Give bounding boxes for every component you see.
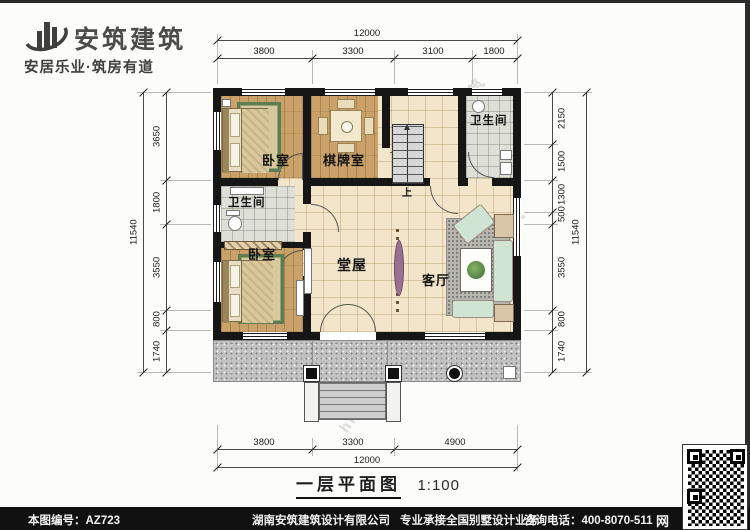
washer [500, 162, 512, 175]
nightstand [222, 99, 231, 107]
room-label-bath-top-right: 卫生间 [470, 112, 508, 128]
window [472, 88, 502, 96]
floor-plan-sheet: 安筑建筑 安居乐业·筑房有道 安筑建筑 安筑建筑 hnaz-jz·com 安筑建… [0, 0, 750, 530]
tv-cabinet [296, 280, 304, 316]
chair [337, 99, 355, 109]
dim-top-seg4: 1800 [474, 45, 514, 57]
stairs [392, 124, 424, 184]
porch-pier [503, 366, 516, 379]
window [408, 88, 453, 96]
dim-right-seg4: 500 [556, 201, 568, 227]
dim-left-seg5: 1740 [151, 332, 163, 370]
dim-top-seg1: 3800 [244, 45, 284, 57]
dim-top-total: 12000 [347, 27, 387, 39]
dim-bottom-seg2: 3300 [333, 436, 373, 448]
dim-right-seg5: 3550 [556, 245, 568, 289]
dim-right-seg6: 800 [556, 306, 568, 332]
interior-wall [492, 178, 513, 186]
footer-bar: 本图编号：AZ723 湖南安筑建筑设计有限公司 专业承接全国别墅设计业务 咨询电… [0, 507, 750, 530]
dim-bottom-total: 12000 [347, 454, 387, 466]
footer-phone: 咨询电话：400-8070-511 [524, 512, 652, 528]
porch-column-square [386, 366, 401, 381]
interior-wall [303, 96, 311, 204]
room-label-living: 客厅 [422, 270, 450, 289]
porch-column-square [304, 366, 319, 381]
drawing-title: 一层平面图 [296, 475, 401, 499]
chair [318, 117, 328, 135]
bed [222, 260, 272, 322]
drawing-scale: 1:100 [417, 477, 460, 494]
window [213, 262, 221, 302]
window [243, 332, 287, 340]
stairs-arrow-line [407, 130, 408, 182]
interior-wall [311, 178, 390, 186]
dim-left-seg1: 3650 [151, 114, 163, 158]
window [213, 205, 221, 232]
window [213, 112, 221, 150]
step-stringer [304, 382, 319, 422]
front-door-opening [320, 332, 376, 340]
dim-right-seg7: 1740 [556, 332, 568, 370]
dim-top-seg2: 3300 [333, 45, 373, 57]
footer-net-mark: 网 [656, 511, 669, 530]
toilet [228, 216, 242, 231]
screen-panel [394, 240, 404, 296]
window [425, 332, 485, 340]
window [513, 198, 521, 256]
brand-logo: 安筑建筑 安居乐业·筑房有道 [22, 12, 222, 74]
qr-code [682, 444, 748, 530]
dim-right-seg2: 1500 [556, 141, 568, 181]
side-table [494, 214, 514, 238]
brand-tagline: 安居乐业·筑房有道 [24, 56, 154, 77]
room-label-bath-mid: 卫生间 [228, 194, 266, 210]
window [242, 88, 285, 96]
room-label-hall: 堂屋 [337, 255, 367, 275]
step-stringer [386, 382, 401, 422]
dim-left-total: 11540 [128, 210, 140, 254]
sofa-right [493, 240, 513, 302]
sink [500, 150, 512, 160]
dim-right-seg1: 2150 [556, 96, 568, 140]
footer-company: 湖南安筑建筑设计有限公司 [252, 512, 390, 528]
dim-bottom-seg1: 3800 [244, 436, 284, 448]
dim-left-seg2: 1800 [151, 183, 163, 221]
dim-bottom-seg3: 4900 [435, 436, 475, 448]
hall-cabinet [304, 248, 312, 294]
teapot-icon [341, 121, 353, 133]
dim-top-seg3: 3100 [413, 45, 453, 57]
room-label-bedroom-top: 卧室 [262, 150, 290, 169]
porch-column-round [447, 366, 462, 381]
dim-left-seg4: 800 [151, 306, 163, 332]
stairs-arrow-head [404, 124, 410, 130]
chair [364, 117, 374, 135]
interior-wall [221, 178, 278, 186]
interior-wall [458, 178, 468, 186]
page-top-border [0, 0, 750, 3]
dim-left-seg3: 3550 [151, 245, 163, 289]
stairs-up-label: 上 [402, 184, 413, 199]
drawing-title-block: 一层平面图 1:100 [296, 470, 460, 495]
door-leaf [302, 153, 303, 180]
entrance-steps [319, 382, 386, 420]
porch [213, 340, 521, 382]
side-table [494, 304, 514, 322]
dim-right-total: 11540 [570, 210, 582, 254]
brand-name: 安筑建筑 [74, 20, 186, 56]
window [325, 88, 375, 96]
room-label-game-room: 棋牌室 [323, 150, 365, 169]
sofa-bottom [452, 300, 494, 318]
footer-service: 专业承接全国别墅设计业务 [400, 512, 538, 528]
room-label-bedroom-bottom: 卧室 [248, 244, 276, 263]
plant-icon [467, 261, 485, 279]
building-logo-icon [24, 14, 68, 56]
interior-wall [382, 96, 390, 148]
drawing-number: 本图编号：AZ723 [28, 512, 120, 528]
interior-wall [458, 96, 466, 178]
